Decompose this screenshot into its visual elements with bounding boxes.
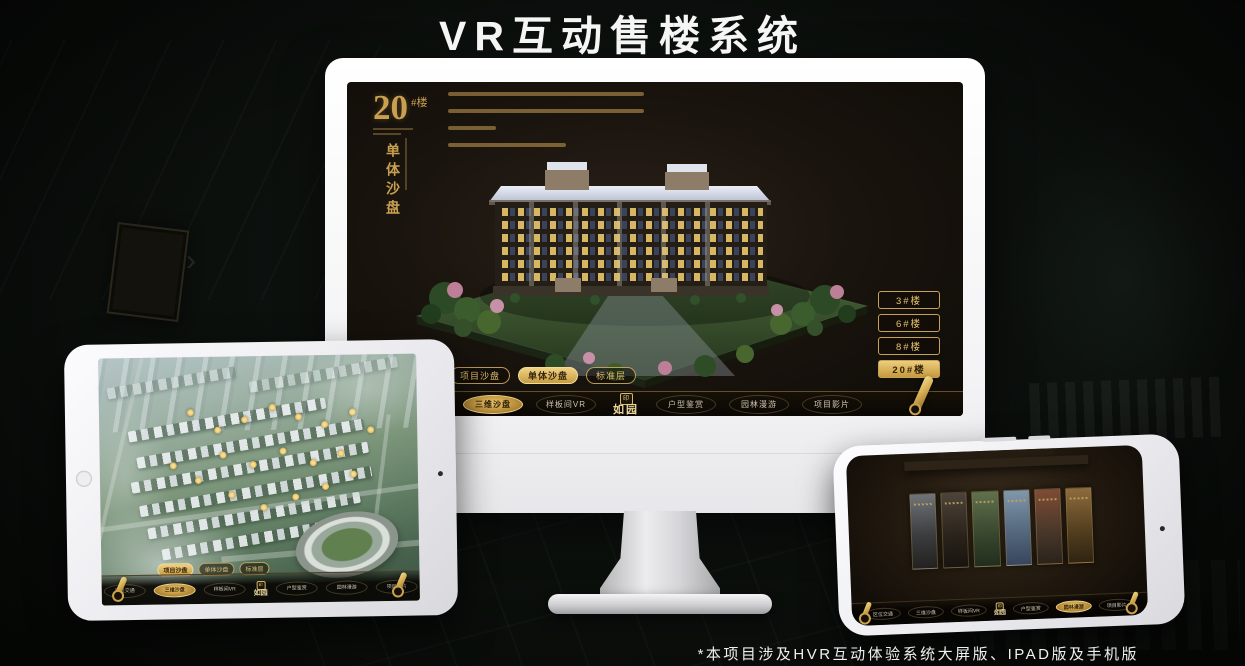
building-button-8[interactable]: 8#楼	[878, 337, 940, 355]
building-badge[interactable]	[214, 427, 221, 434]
scene-panel[interactable]	[1065, 487, 1094, 564]
building-badge[interactable]	[269, 404, 276, 411]
building-badge[interactable]	[187, 409, 194, 416]
scene-panel[interactable]	[972, 490, 1001, 567]
nav-item-model-room-vr[interactable]: 样板间VR	[204, 582, 246, 597]
building-selector: 3#楼 6#楼 8#楼 20#楼	[878, 291, 940, 378]
nav-item-3d-sandtable[interactable]: 三维沙盘	[154, 583, 196, 598]
phone-nav-bar: 区位交通 三维沙盘 样板间VR 印 如园 户型鉴赏 园林漫游 项目影片	[851, 592, 1148, 626]
building-badge[interactable]	[279, 448, 286, 455]
cloud-haze	[296, 354, 420, 436]
building-badge[interactable]	[322, 483, 329, 490]
tablet-screen: 项目沙盘 单体沙盘 标准层 区位交通 三维沙盘 样板间VR 印 如园 户型鉴赏 …	[98, 354, 420, 606]
building-number: 20	[373, 90, 408, 125]
subtab-project-sandtable[interactable]: 项目沙盘	[450, 367, 510, 384]
scene-gallery	[909, 487, 1094, 570]
subtab-standard-floor[interactable]: 标准层	[586, 367, 636, 384]
camera-icon	[1160, 526, 1165, 531]
nav-item-3d-sandtable[interactable]: 三维沙盘	[908, 606, 944, 619]
brand-logo-text: 如园	[994, 610, 1006, 616]
building-badge[interactable]	[250, 461, 257, 468]
brand-logo[interactable]: 印 如园	[613, 393, 639, 416]
nav-item-project-film[interactable]: 项目影片	[802, 395, 862, 414]
phone-device: 区位交通 三维沙盘 样板间VR 印 如园 户型鉴赏 园林漫游 项目影片	[832, 433, 1185, 636]
building-render[interactable]	[405, 128, 885, 390]
building-button-3[interactable]: 3#楼	[878, 291, 940, 309]
nav-item-3d-sandtable[interactable]: 三维沙盘	[463, 395, 523, 414]
footnote: *本项目涉及HVR互动体验系统大屏版、IPAD版及手机版	[698, 643, 1139, 664]
camera-icon	[438, 471, 443, 476]
page-title: VR互动售楼系统	[0, 2, 1245, 62]
scene-panel[interactable]	[1003, 489, 1032, 566]
building-button-6[interactable]: 6#楼	[878, 314, 940, 332]
building-badge[interactable]	[195, 477, 202, 484]
phone-screen: 区位交通 三维沙盘 样板间VR 印 如园 户型鉴赏 园林漫游 项目影片	[846, 445, 1148, 626]
home-button	[76, 471, 92, 487]
scroll-menu-icon[interactable]	[911, 375, 935, 413]
scene-panel[interactable]	[1034, 488, 1063, 565]
poster: › VR互动售楼系统 20 #楼 单体沙盘	[0, 0, 1245, 666]
background-plaque	[107, 222, 190, 322]
nav-item-model-room-vr[interactable]: 样板间VR	[951, 604, 987, 617]
cloud-haze	[98, 397, 171, 558]
building-badge[interactable]	[292, 493, 299, 500]
monitor-stand-base	[548, 594, 772, 614]
scene-roof-beam	[904, 455, 1088, 471]
building-badge[interactable]	[241, 416, 248, 423]
scene-panel[interactable]	[909, 493, 938, 570]
chevron-right-icon: ›	[186, 244, 196, 278]
nav-item-unit-gallery[interactable]: 户型鉴赏	[276, 581, 318, 596]
power-button	[1028, 435, 1050, 440]
nav-item-garden-roam[interactable]: 园林漫游	[1056, 600, 1092, 613]
seal-icon: 印	[620, 393, 633, 405]
nav-item-unit-gallery[interactable]: 户型鉴赏	[656, 395, 716, 414]
brand-logo-text: 如园	[613, 405, 639, 416]
subtab-single-sandtable[interactable]: 单体沙盘	[518, 367, 578, 384]
building-number-suffix: #楼	[411, 94, 428, 110]
building-badge[interactable]	[260, 504, 267, 511]
brand-logo[interactable]: 印 如园	[994, 602, 1007, 616]
building-badge[interactable]	[220, 452, 227, 459]
monitor-subtabs: 项目沙盘 单体沙盘 标准层	[450, 367, 636, 384]
volume-button	[982, 437, 1016, 442]
brand-logo-text: 如园	[254, 589, 268, 596]
nav-item-unit-gallery[interactable]: 户型鉴赏	[1013, 602, 1049, 615]
building-badge[interactable]	[310, 459, 317, 466]
building-badge[interactable]	[350, 470, 357, 477]
nav-item-garden-roam[interactable]: 园林漫游	[326, 580, 368, 595]
nav-item-location-traffic[interactable]: 区位交通	[104, 583, 146, 598]
building-badge[interactable]	[170, 462, 177, 469]
building-badge[interactable]	[338, 450, 345, 457]
brand-logo[interactable]: 印 如园	[254, 580, 268, 596]
tablet-nav-bar: 区位交通 三维沙盘 样板间VR 印 如园 户型鉴赏 园林漫游 项目影片	[101, 571, 419, 606]
nav-item-model-room-vr[interactable]: 样板间VR	[536, 395, 596, 414]
nav-item-garden-roam[interactable]: 园林漫游	[729, 395, 789, 414]
background-buildings	[1029, 377, 1221, 444]
building-badge[interactable]	[228, 491, 235, 498]
scene-panel[interactable]	[940, 492, 969, 569]
section-subtitle: 单体沙盘	[381, 143, 401, 219]
building-button-20[interactable]: 20#楼	[878, 360, 940, 378]
tablet-device: 项目沙盘 单体沙盘 标准层 区位交通 三维沙盘 样板间VR 印 如园 户型鉴赏 …	[64, 339, 458, 621]
